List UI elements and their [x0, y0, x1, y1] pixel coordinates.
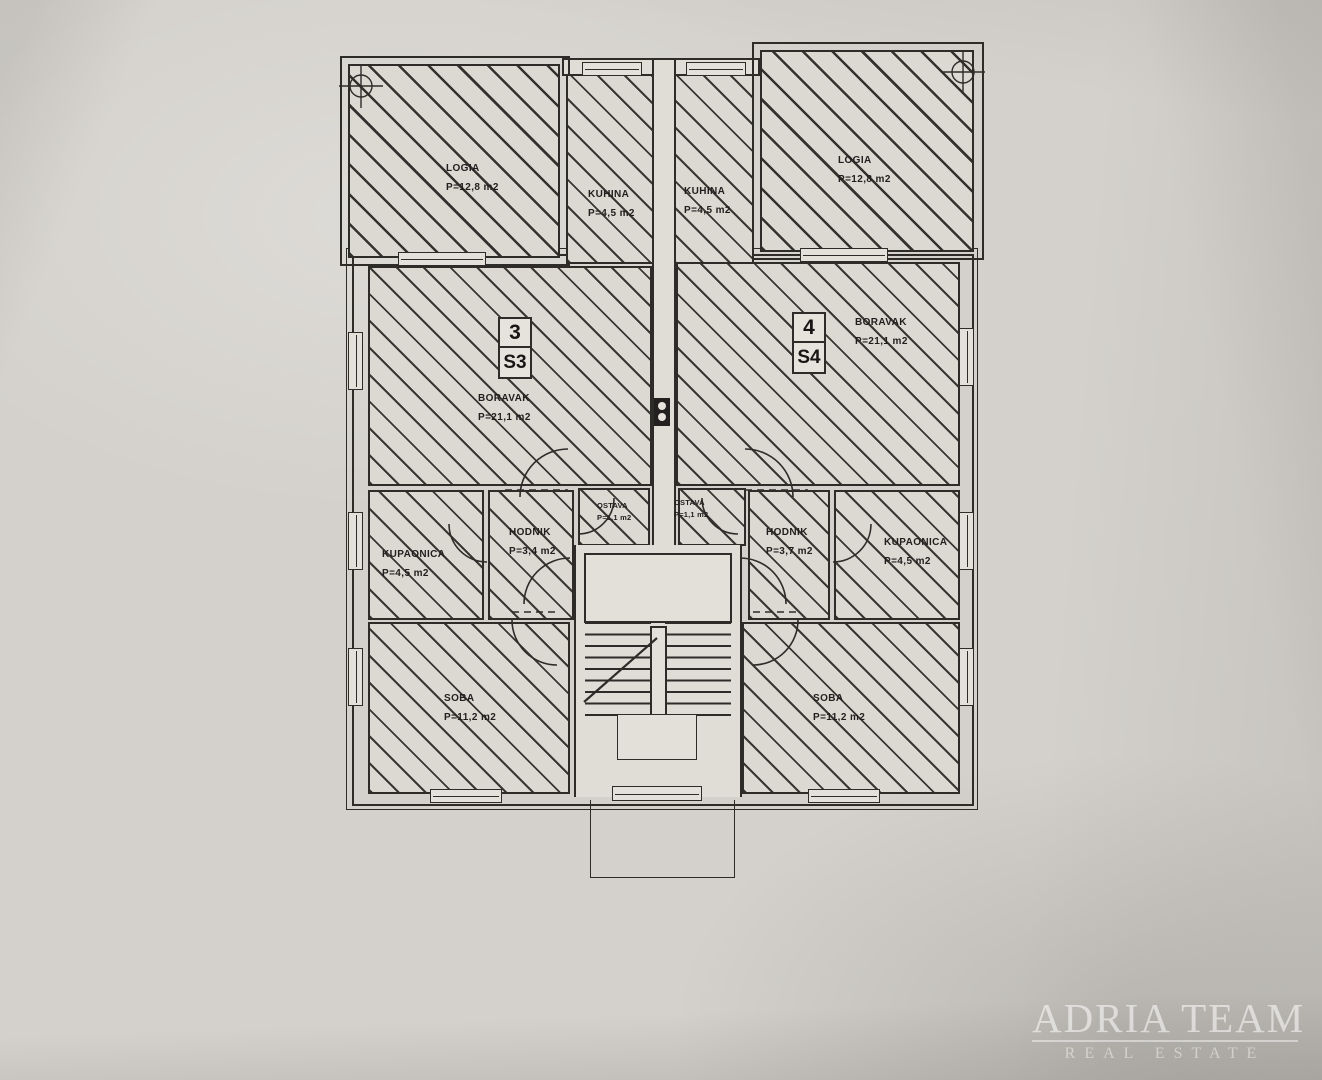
window-west-3 — [348, 648, 363, 706]
window-south-right — [808, 789, 880, 803]
window-east-1 — [959, 328, 974, 386]
window-east-3 — [959, 648, 974, 706]
label-hodnik-left: HODNIK P=3,4 m2 — [509, 524, 556, 561]
room-area: P=12,8 m2 — [838, 171, 891, 190]
watermark-title: ADRIA TEAM — [1032, 998, 1298, 1042]
room-area: P=11,2 m2 — [444, 709, 496, 728]
unit-badge-s4: 4 S4 — [792, 312, 826, 374]
label-kuhina-right: KUHINA P=4,5 m2 — [684, 183, 731, 220]
room-kuhina-left — [566, 74, 654, 264]
room-kuhina-right — [672, 74, 754, 264]
window-west-1 — [348, 332, 363, 390]
room-name: SOBA — [444, 690, 496, 709]
room-name: KUPAONICA — [884, 534, 947, 553]
room-area: P=11,2 m2 — [813, 709, 865, 728]
room-name: KUHINA — [588, 186, 635, 205]
label-kupaonica-right: KUPAONICA P=4,5 m2 — [884, 534, 947, 571]
label-soba-right: SOBA P=11,2 m2 — [813, 690, 865, 727]
room-area: P=1,1 m2 — [674, 509, 708, 521]
loggia-door-right — [800, 248, 888, 262]
room-area: P=1,1 m2 — [597, 512, 631, 524]
room-area: P=4,5 m2 — [684, 202, 731, 221]
room-area: P=21,1 m2 — [478, 409, 531, 428]
room-name: BORAVAK — [478, 390, 531, 409]
label-loggia-right: LOGIA P=12,8 m2 — [838, 152, 891, 189]
stair-flight-left — [585, 622, 651, 716]
room-name: LOGIA — [446, 160, 499, 179]
room-area: P=3,4 m2 — [509, 543, 556, 562]
agency-watermark: ADRIA TEAM REAL ESTATE — [1032, 998, 1298, 1065]
entrance-porch — [590, 800, 735, 878]
window-south-left — [430, 789, 502, 803]
label-boravak-left: BORAVAK P=21,1 m2 — [478, 390, 531, 427]
label-kupaonica-left: KUPAONICA P=4,5 m2 — [382, 546, 445, 583]
room-name: OSTAVA — [674, 497, 708, 509]
stair-flight-right — [665, 622, 731, 716]
room-area: P=4,5 m2 — [382, 565, 445, 584]
room-name: BORAVAK — [855, 314, 908, 333]
window-kitchen-right — [686, 62, 746, 76]
room-name: LOGIA — [838, 152, 891, 171]
label-kuhina-left: KUHINA P=4,5 m2 — [588, 186, 635, 223]
stair-lower-landing — [617, 714, 697, 760]
room-area: P=4,5 m2 — [884, 553, 947, 572]
unit-badge-s3: 3 S3 — [498, 317, 532, 379]
room-boravak-right — [676, 262, 960, 486]
stair-stringer — [650, 626, 667, 724]
chimney-flue — [654, 398, 670, 426]
room-name: HODNIK — [766, 524, 813, 543]
label-boravak-right: BORAVAK P=21,1 m2 — [855, 314, 908, 351]
window-west-2 — [348, 512, 363, 570]
unit-number: 3 — [500, 319, 530, 348]
label-loggia-left: LOGIA P=12,8 m2 — [446, 160, 499, 197]
room-area: P=12,8 m2 — [446, 179, 499, 198]
room-area: P=3,7 m2 — [766, 543, 813, 562]
label-ostava-right: OSTAVA P=1,1 m2 — [674, 497, 708, 521]
room-name: KUHINA — [684, 183, 731, 202]
label-ostava-left: OSTAVA P=1,1 m2 — [597, 500, 631, 524]
room-name: SOBA — [813, 690, 865, 709]
loggia-door-left — [398, 252, 486, 266]
room-loggia-right — [760, 50, 974, 252]
label-soba-left: SOBA P=11,2 m2 — [444, 690, 496, 727]
window-kitchen-left — [582, 62, 642, 76]
unit-number: 4 — [794, 314, 824, 343]
label-hodnik-right: HODNIK P=3,7 m2 — [766, 524, 813, 561]
room-name: KUPAONICA — [382, 546, 445, 565]
stair-landing — [584, 553, 732, 623]
entrance-door — [612, 786, 702, 801]
photographed-floor-plan: { "plan": { "title_note": "floor plan wi… — [0, 0, 1322, 1080]
room-name: HODNIK — [509, 524, 556, 543]
unit-code: S4 — [794, 343, 824, 372]
room-area: P=21,1 m2 — [855, 333, 908, 352]
window-east-2 — [959, 512, 974, 570]
room-name: OSTAVA — [597, 500, 631, 512]
watermark-subtitle: REAL ESTATE — [1032, 1043, 1298, 1065]
unit-code: S3 — [500, 348, 530, 377]
room-area: P=4,5 m2 — [588, 205, 635, 224]
installation-shaft — [652, 60, 676, 546]
